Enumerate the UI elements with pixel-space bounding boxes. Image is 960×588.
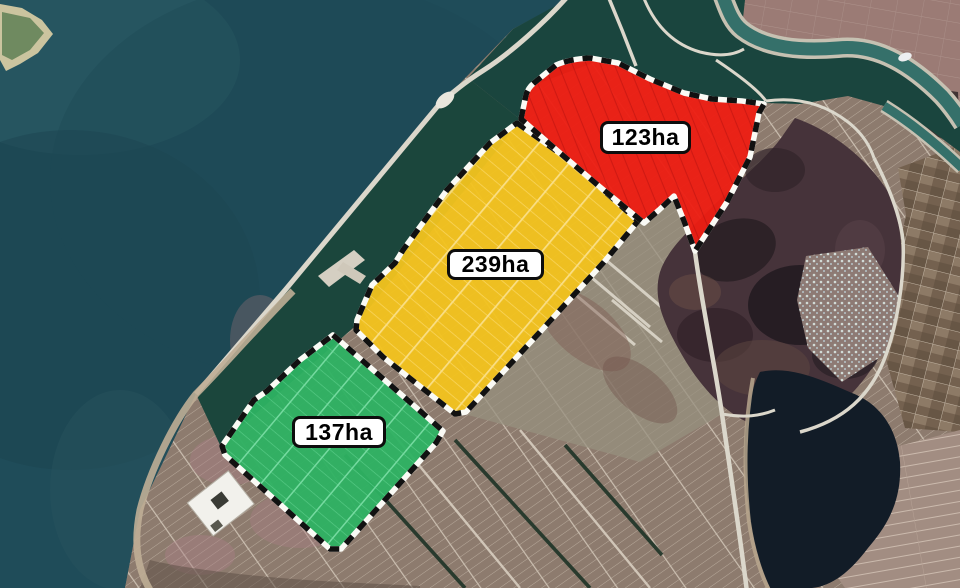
zone-label-123ha: 123ha — [600, 121, 691, 154]
zone-label-137ha-text: 137ha — [305, 421, 373, 444]
map-canvas — [0, 0, 960, 588]
satellite-map: 123ha 239ha 137ha — [0, 0, 960, 588]
zone-label-239ha: 239ha — [447, 249, 544, 280]
zone-label-137ha: 137ha — [292, 416, 386, 448]
zone-label-239ha-text: 239ha — [462, 253, 530, 276]
zone-label-123ha-text: 123ha — [612, 126, 680, 149]
